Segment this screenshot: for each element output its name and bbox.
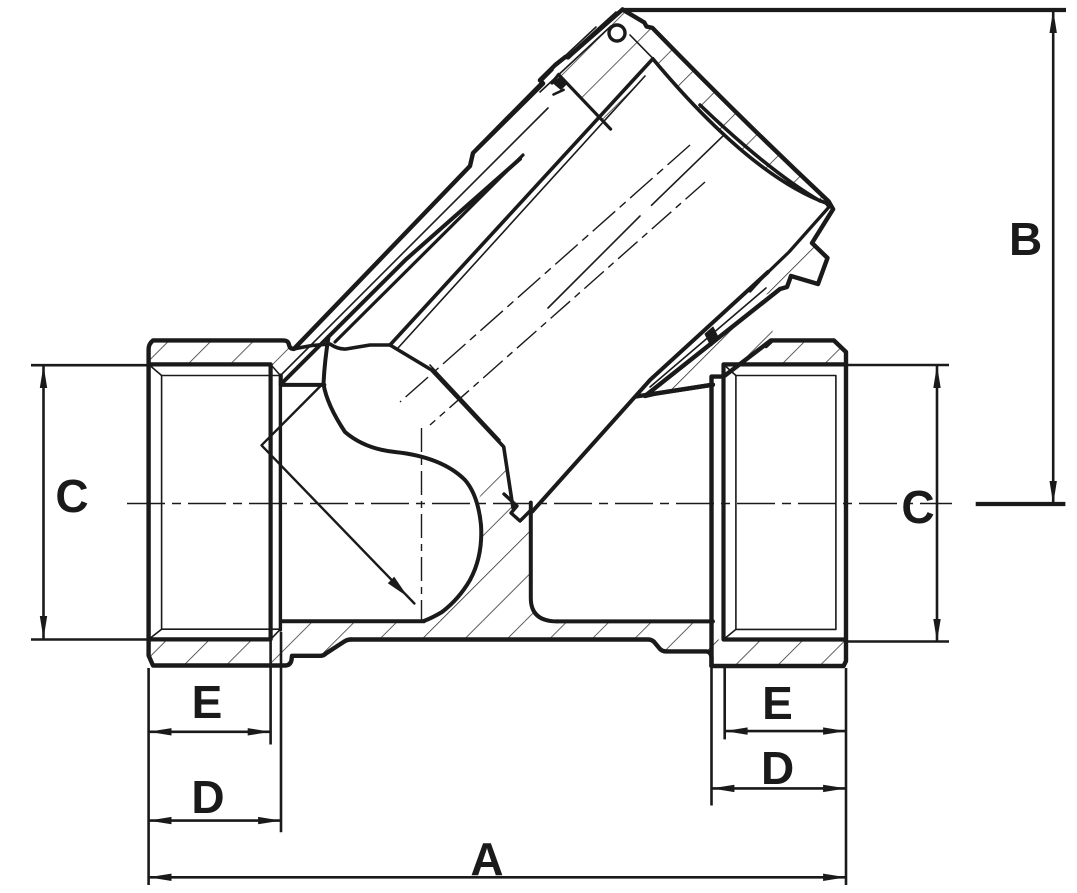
- svg-text:D: D: [191, 771, 224, 823]
- svg-text:C: C: [901, 481, 934, 533]
- svg-text:C: C: [55, 470, 88, 522]
- svg-text:B: B: [1009, 213, 1042, 265]
- svg-text:A: A: [470, 833, 503, 885]
- svg-text:E: E: [762, 677, 793, 729]
- svg-text:E: E: [192, 676, 223, 728]
- svg-text:D: D: [761, 742, 794, 794]
